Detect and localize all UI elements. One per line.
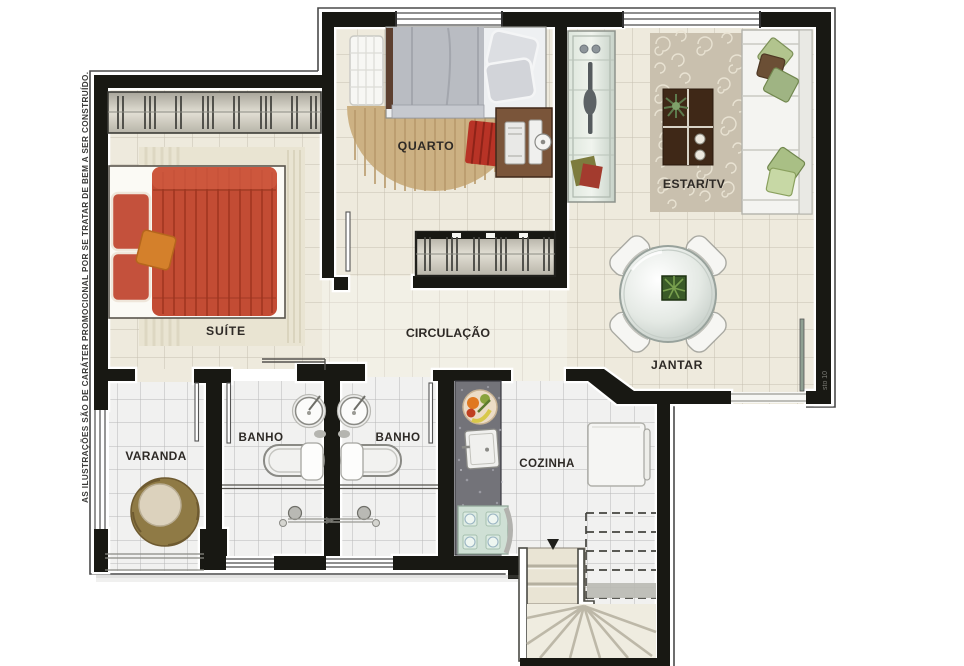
svg-text:BANHO: BANHO [375,431,420,444]
svg-text:BANHO: BANHO [238,431,283,444]
svg-text:ESTAR/TV: ESTAR/TV [663,177,726,191]
svg-text:COZINHA: COZINHA [519,457,575,470]
svg-text:VARANDA: VARANDA [125,449,186,463]
svg-text:JANTAR: JANTAR [651,358,703,372]
svg-text:QUARTO: QUARTO [398,139,455,153]
svg-text:AS ILUSTRAÇÕES SÃO DE CARÁTER: AS ILUSTRAÇÕES SÃO DE CARÁTER PROMOCIONA… [80,72,90,503]
svg-text:sto 10: sto 10 [822,371,829,390]
svg-text:CIRCULAÇÃO: CIRCULAÇÃO [406,325,491,340]
svg-text:SUÍTE: SUÍTE [206,323,246,338]
